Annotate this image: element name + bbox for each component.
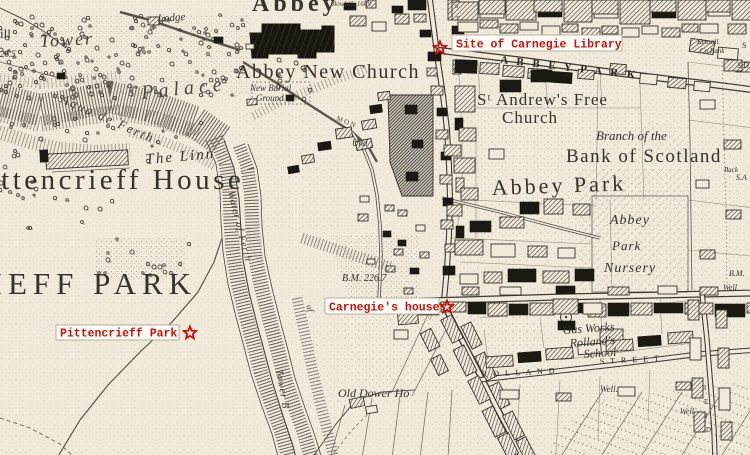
svg-text:S.D: S.D <box>737 61 749 70</box>
svg-text:Branch of the: Branch of the <box>596 128 667 143</box>
svg-text:Abbey: Abbey <box>609 213 650 228</box>
svg-text:Well: Well <box>680 407 695 416</box>
svg-text:26.5: 26.5 <box>0 49 16 59</box>
svg-text:Abbey Park: Abbey Park <box>491 170 626 200</box>
svg-text:S: S <box>455 4 458 10</box>
svg-text:RIEFF PARK: RIEFF PARK <box>0 266 197 301</box>
svg-text:Old Dower Ho: Old Dower Ho <box>338 386 409 400</box>
svg-text:S: S <box>742 41 746 50</box>
svg-text:ill: ill <box>0 26 11 41</box>
svg-text:Abbey: Abbey <box>252 0 339 17</box>
svg-text:Kensall.: Kensall. <box>696 38 720 46</box>
svg-text:Well: Well <box>723 283 738 292</box>
svg-text:Carnegie's house: Carnegie's house <box>329 302 440 315</box>
svg-text:B.M.: B.M. <box>729 269 745 278</box>
svg-text:S.A: S.A <box>736 173 747 182</box>
svg-text:New Burial: New Burial <box>249 83 292 93</box>
svg-text:Tower: Tower <box>39 28 94 51</box>
svg-text:Co.Bank: Co.Bank <box>700 47 725 55</box>
svg-text:Lodge: Lodge <box>156 11 185 25</box>
svg-text:Nursery: Nursery <box>603 261 656 276</box>
svg-text:Park: Park <box>611 238 641 253</box>
svg-text:Back: Back <box>724 166 739 174</box>
svg-text:Site of Carnegie Library: Site of Carnegie Library <box>456 39 622 52</box>
svg-text:Well.: Well. <box>600 384 618 394</box>
svg-text:R: R <box>702 384 707 392</box>
svg-text:Bowl.Gr.1669: Bowl.Gr.1669 <box>332 0 371 8</box>
svg-text:B.M. 226.7: B.M. 226.7 <box>342 273 387 284</box>
svg-text:Und: Und <box>352 138 368 148</box>
svg-text:Ground: Ground <box>256 93 284 103</box>
svg-text:Pittencrieff House: Pittencrieff House <box>0 164 244 196</box>
svg-text:D: D <box>706 426 711 434</box>
svg-text:Pittencrieff Park: Pittencrieff Park <box>60 328 177 341</box>
svg-text:Abbey New Church: Abbey New Church <box>236 61 420 83</box>
svg-text:T: T <box>456 16 460 22</box>
svg-text:Sᵗ Andrew's Free: Sᵗ Andrew's Free <box>477 90 608 109</box>
svg-text:Bank of Scotland: Bank of Scotland <box>566 146 722 167</box>
svg-text:E: E <box>704 398 708 406</box>
svg-text:Church: Church <box>502 108 558 127</box>
